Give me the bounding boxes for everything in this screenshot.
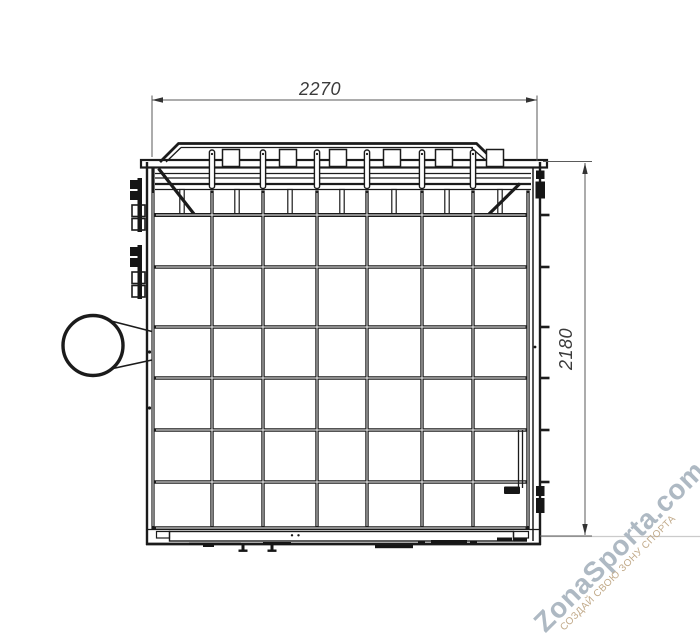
top-rail-assembly [141, 144, 547, 216]
width-dimension-label: 2270 [298, 79, 341, 99]
left-brace [159, 169, 195, 215]
bottom-rail [146, 530, 541, 552]
height-dimension: 2180 [540, 162, 592, 537]
watermark: ZonaSporta.com СОЗДАЙ СВОЮ ЗОНУ СПОРТА [528, 455, 700, 638]
width-dimension: 2270 [152, 79, 537, 161]
technical-drawing-page: 2270 2180 ZonaSporta.com СОЗДАЙ СВОЮ ЗОН… [0, 0, 700, 642]
right-brace [489, 184, 520, 215]
frame-outline [147, 162, 540, 545]
sub-rail-posts [180, 190, 502, 216]
watermark-brand: ZonaSporta.com [528, 455, 700, 638]
grid [152, 167, 530, 530]
height-dimension-label: 2180 [556, 328, 576, 371]
technical-drawing: 2270 2180 ZonaSporta.com СОЗДАЙ СВОЮ ЗОН… [0, 0, 700, 642]
side-pipe [63, 316, 152, 376]
